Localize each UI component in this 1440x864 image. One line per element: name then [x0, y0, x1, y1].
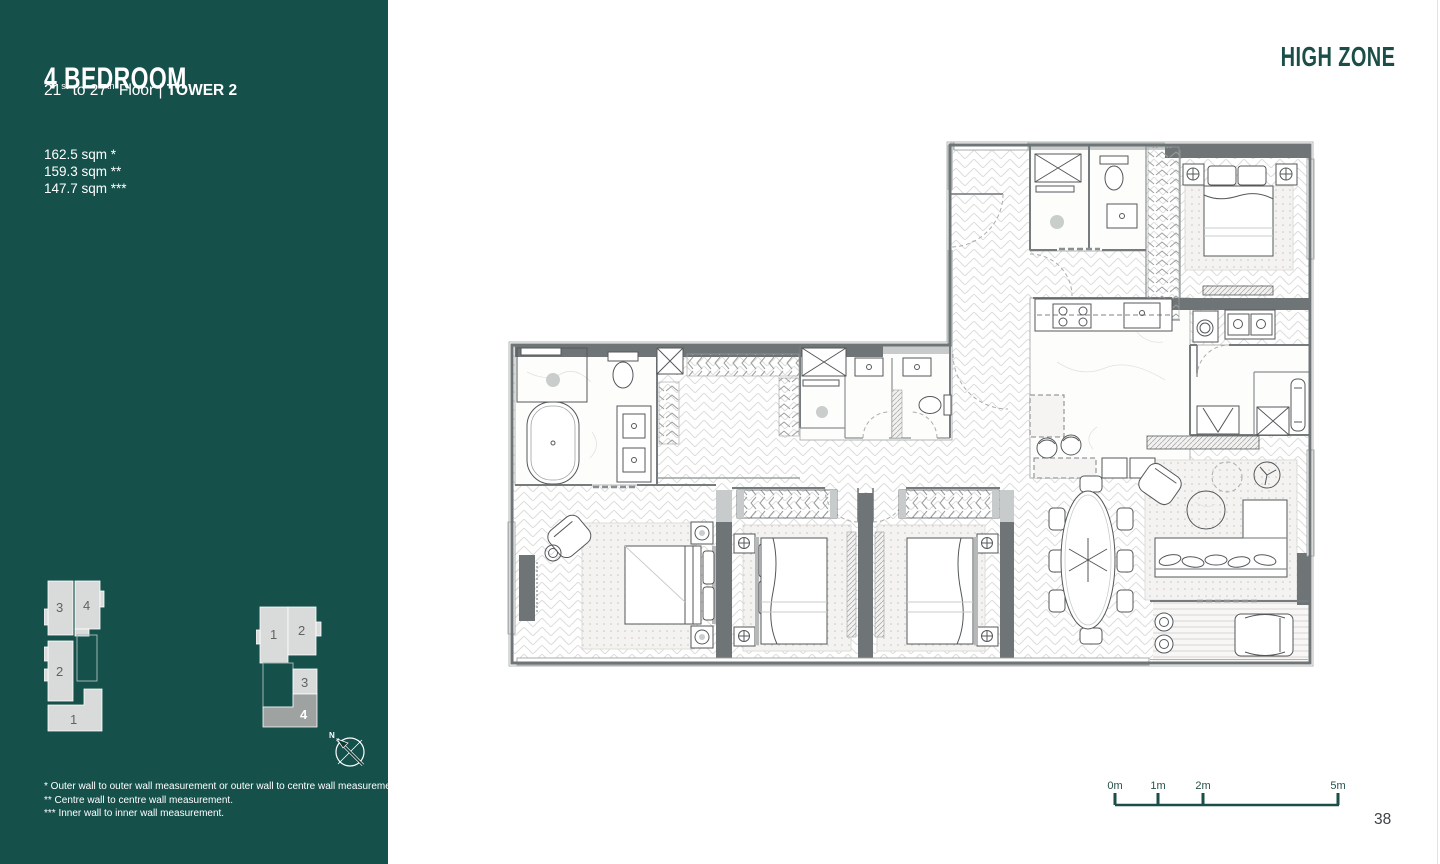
floor-to-suffix: th	[107, 81, 115, 91]
compass-icon: N	[328, 728, 372, 772]
footnote-outer: * Outer wall to outer wall measurement o…	[44, 780, 402, 794]
keyplan2-label-4: 4	[300, 707, 308, 722]
floor-to: to 27	[68, 82, 107, 99]
area-centre: 159.3 sqm **	[44, 163, 127, 180]
lounge-chair	[1235, 614, 1293, 656]
brochure-page: 4 BEDROOM 21st to 27th Floor | TOWER 2 1…	[0, 0, 1440, 864]
keyplan2-core	[263, 663, 293, 707]
tower-label: TOWER 2	[167, 82, 237, 99]
scale-5m: 5m	[1330, 780, 1345, 792]
planter-pot	[1155, 613, 1173, 631]
keyplan1-label-1: 1	[70, 712, 77, 727]
stool	[1037, 438, 1057, 458]
bed	[907, 538, 973, 644]
pillow	[1238, 166, 1266, 185]
ironing-board	[1291, 379, 1305, 431]
utility-basin	[1197, 406, 1239, 434]
keyplan2-label-3: 3	[301, 675, 308, 690]
sink	[1107, 204, 1137, 228]
scale-0m: 0m	[1107, 780, 1122, 792]
hanging-rail	[779, 378, 799, 436]
scale-2m: 2m	[1195, 780, 1210, 792]
bed	[625, 546, 701, 624]
island-counter	[1034, 458, 1096, 478]
pillow	[1208, 166, 1236, 185]
floor-label: Floor |	[115, 82, 167, 99]
washing-machine	[1193, 311, 1218, 342]
zone-label: HIGH ZONE	[1280, 42, 1395, 74]
tv-console	[1147, 436, 1259, 449]
keyplan1-label-4: 4	[83, 598, 90, 613]
closet-strip	[847, 532, 856, 637]
laundry-sinks	[1225, 310, 1275, 339]
bathtub	[527, 402, 579, 484]
keyplan-tower1: 3 4 2 1	[44, 575, 116, 735]
scale-bar: 0m 1m 2m 5m	[1106, 778, 1351, 812]
keyplan1-core	[77, 635, 97, 681]
stool	[1061, 435, 1081, 455]
floor-tower-subtitle: 21st to 27th Floor | TOWER 2	[44, 81, 237, 100]
wardrobe-bedroom4	[1148, 147, 1179, 319]
pillow	[703, 551, 714, 584]
keyplan2-label-2: 2	[298, 623, 305, 638]
wardrobe	[899, 490, 999, 518]
area-inner: 147.7 sqm ***	[44, 180, 127, 197]
area-measurements: 162.5 sqm * 159.3 sqm ** 147.7 sqm ***	[44, 146, 127, 197]
dresser	[1203, 286, 1273, 295]
bathroom-2	[855, 358, 883, 376]
page-edge-line	[1437, 0, 1438, 864]
headboard	[974, 537, 978, 645]
pantry-cabinet	[1030, 395, 1064, 437]
floorplan-drawing	[497, 132, 1325, 677]
compass-north-label: N	[329, 731, 335, 740]
wardrobe	[737, 490, 837, 518]
scale-1m: 1m	[1150, 780, 1165, 792]
floor-from: 21	[44, 82, 61, 99]
headboard	[755, 537, 759, 645]
keyplan1-label-3: 3	[56, 600, 63, 615]
bed	[761, 538, 827, 644]
footnote-centre: ** Centre wall to centre wall measuremen…	[44, 794, 402, 808]
closet-strip	[875, 532, 884, 637]
keyplan-tower2: 1 2 3 4	[256, 606, 326, 732]
shower-drain	[546, 373, 560, 387]
sidebar: 4 BEDROOM 21st to 27th Floor | TOWER 2 1…	[0, 0, 388, 864]
footnote-inner: *** Inner wall to inner wall measurement…	[44, 807, 402, 821]
bed	[1204, 186, 1273, 256]
measurement-footnotes: * Outer wall to outer wall measurement o…	[44, 780, 402, 821]
hanging-rail	[659, 382, 679, 444]
tv-console-master	[519, 555, 535, 621]
keyplan2-unit-4-selected	[263, 694, 317, 727]
planter-pot	[1155, 635, 1173, 653]
keyplan1-label-2: 2	[56, 664, 63, 679]
page-number: 38	[1374, 811, 1391, 829]
hanging-rail	[687, 354, 799, 376]
keyplan2-label-1: 1	[270, 627, 277, 642]
double-vanity	[617, 406, 651, 482]
area-outer: 162.5 sqm *	[44, 146, 127, 163]
pillow	[703, 587, 714, 620]
